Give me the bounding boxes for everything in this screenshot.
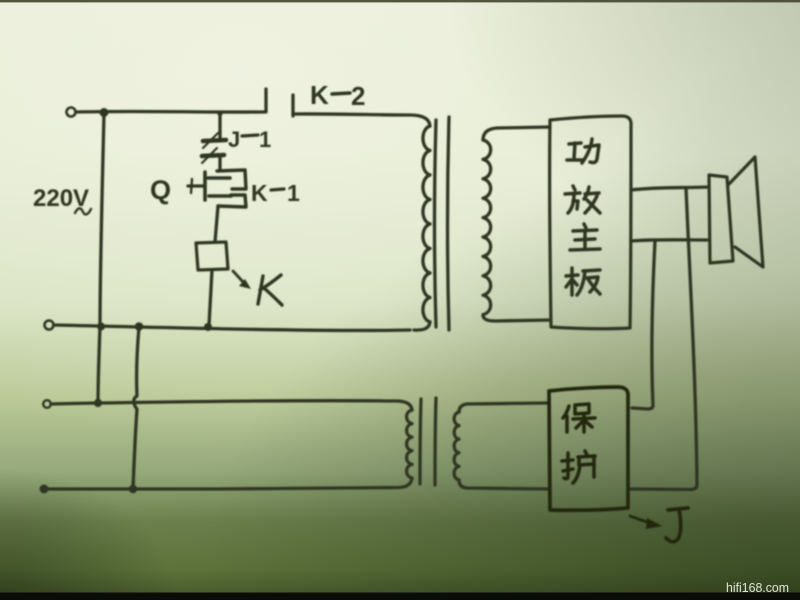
svg-text:Q: Q [150,175,171,205]
svg-text:2: 2 [351,81,365,111]
svg-text:K: K [251,180,268,206]
svg-text:K: K [310,80,329,110]
svg-text:1: 1 [287,180,300,206]
svg-text:J: J [228,127,240,152]
svg-text:1: 1 [259,127,271,152]
